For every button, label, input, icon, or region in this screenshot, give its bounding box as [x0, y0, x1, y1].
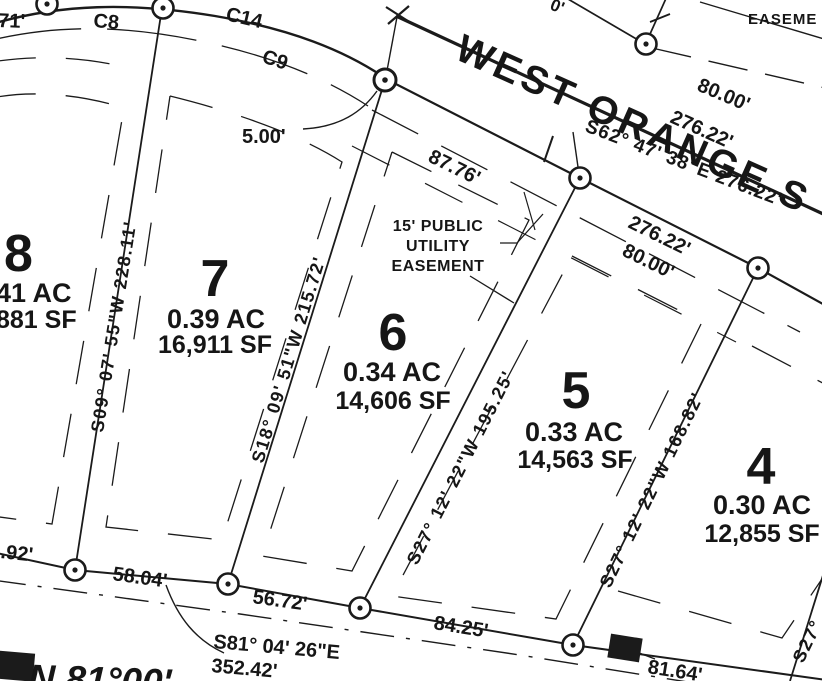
pue-note-line1: 15' PUBLIC	[393, 218, 484, 235]
rear-distance-label: 352.42'	[211, 655, 279, 681]
plat-drawing: WEST ORANGE S S62° 47' 38"E 276.22' EASE…	[0, 0, 822, 681]
north-row-line	[556, 0, 645, 44]
lot-number: 7	[201, 250, 230, 308]
dim-top-left-partial: 71'	[0, 10, 26, 33]
dim-top-edge-partial: 0'	[548, 0, 568, 18]
curve-label-c14: C14	[224, 3, 266, 33]
lot-acres: 0.33 AC	[525, 417, 623, 447]
bearing-lot8-7: S09° 07' 55"W 228.11'	[87, 219, 140, 433]
lot-number: 6	[379, 304, 408, 362]
survey-monument-icon	[748, 258, 769, 279]
lot-acres: 0.39 AC	[167, 304, 265, 334]
rear-bold-partial-label: N 81°00'	[28, 657, 173, 681]
lot-acres: 0.30 AC	[713, 490, 811, 520]
survey-monument-icon	[374, 69, 396, 91]
survey-monument-icon	[37, 0, 58, 15]
bearing-right-partial: S27°	[789, 616, 822, 665]
dim-rear-partial-92: .92'	[0, 541, 34, 566]
leader-easement-lower	[470, 276, 514, 303]
leader-easement-upper	[500, 214, 543, 243]
lot-number: 5	[562, 362, 591, 420]
tick-mark	[650, 14, 670, 22]
centerline-x-icon	[386, 6, 411, 24]
dim-rear-58: 58.04'	[111, 563, 168, 592]
north-row-dash	[652, 48, 822, 90]
lot-sqft: 14,606 SF	[335, 387, 450, 415]
survey-monument-icon	[563, 635, 584, 656]
survey-monument-icon	[218, 574, 239, 595]
lot-acres: 0.34 AC	[343, 357, 441, 387]
dim-rear-81: 81.64'	[646, 656, 704, 681]
tick-mark	[544, 136, 553, 162]
lot-number: 4	[747, 438, 776, 496]
curve-label-c8: C8	[93, 10, 120, 34]
easement-partial-label: EASEME	[748, 11, 817, 28]
survey-monument-icon	[636, 34, 657, 55]
bearing-lot7-6: S18° 09' 51"W 215.72'	[248, 254, 330, 465]
curve-label-c9: C9	[259, 46, 290, 75]
pue-note-line2: UTILITY	[406, 238, 470, 255]
survey-monument-icon	[153, 0, 174, 19]
survey-monument-icon	[350, 598, 371, 619]
dim-rear-56: 56.72'	[251, 586, 308, 615]
dim-5ft-offset: 5.00'	[242, 126, 286, 148]
survey-monument-icon	[570, 168, 591, 189]
lot-acres: 41 AC	[0, 278, 72, 308]
centerline-stub	[386, 17, 397, 76]
leader-5ft-offset	[303, 91, 377, 129]
envelope-lot8-upper	[0, 58, 128, 68]
labels: WEST ORANGE S S62° 47' 38"E 276.22' EASE…	[0, 0, 822, 681]
easement-width-line	[524, 192, 535, 230]
lot-number: 8	[4, 225, 33, 283]
lot-sqft: 881 SF	[0, 306, 77, 334]
lot-sqft: 12,855 SF	[704, 520, 819, 548]
plat-map: WEST ORANGE S S62° 47' 38"E 276.22' EASE…	[0, 0, 822, 681]
row-curve	[0, 7, 388, 80]
found-monument-square-icon	[607, 634, 642, 663]
survey-monument-icon	[65, 560, 86, 581]
pue-note-line3: EASEMENT	[392, 258, 485, 275]
lot-sqft: 16,911 SF	[158, 331, 272, 359]
lot-sqft: 14,563 SF	[517, 446, 632, 474]
dim-upper-80: 80.00'	[694, 74, 753, 116]
dim-rear-84: 84.25'	[432, 612, 490, 642]
